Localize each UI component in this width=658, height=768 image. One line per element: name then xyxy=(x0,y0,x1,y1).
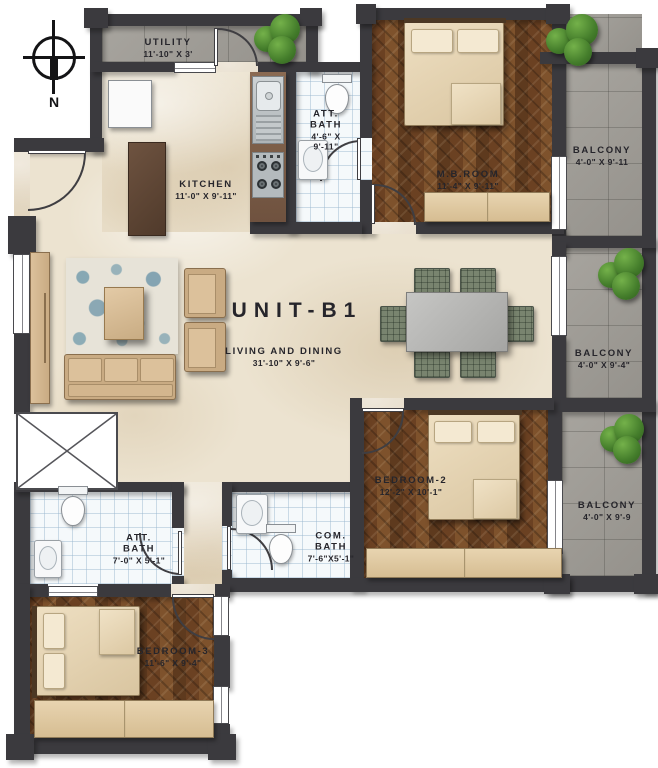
pillow xyxy=(411,29,453,53)
dining-chair xyxy=(380,306,408,342)
door-leaf xyxy=(178,531,182,575)
room-label-com-bath: COM. BATH 7'-6"X5'-1" xyxy=(304,531,358,564)
refrigerator xyxy=(108,80,152,128)
room-label-kitchen: KITCHEN 11'-0" X 9'-11" xyxy=(151,179,261,201)
bed-bedroom2 xyxy=(428,414,520,520)
wall-segment xyxy=(548,398,656,412)
wall-segment xyxy=(14,738,232,754)
room-label-balcony-bottom: BALCONY 4'-0" X 9'-9 xyxy=(562,500,652,522)
window xyxy=(551,156,567,230)
sofa xyxy=(64,354,176,400)
sofa-cushion xyxy=(140,358,174,382)
plant-foliage xyxy=(612,272,640,300)
dining-chair xyxy=(506,306,534,342)
wall-segment xyxy=(356,4,376,24)
wardrobe-master xyxy=(424,192,550,222)
wall-segment xyxy=(360,8,372,138)
door-leaf xyxy=(227,526,231,570)
blanket xyxy=(473,479,517,519)
toilet-bowl xyxy=(61,496,85,526)
armchair-cushion xyxy=(188,274,216,314)
plant-foliage xyxy=(613,436,641,464)
bed-headboard xyxy=(404,18,506,23)
stove-knobs xyxy=(256,155,282,158)
wall-segment xyxy=(90,14,102,152)
sink-drainboard xyxy=(256,115,281,141)
window xyxy=(551,256,567,336)
floor-plan: N xyxy=(0,0,658,768)
compass-north-label: N xyxy=(22,94,86,110)
stove-burner xyxy=(257,161,267,171)
bed-headboard xyxy=(428,410,522,415)
wall-segment xyxy=(222,482,362,492)
wardrobe-bedroom3 xyxy=(34,700,214,738)
door-leaf xyxy=(172,594,214,598)
wall-segment xyxy=(84,8,108,28)
toilet-tank xyxy=(266,524,296,533)
door-opening xyxy=(360,138,372,180)
toilet-bowl xyxy=(269,534,293,564)
potted-plant xyxy=(544,14,602,66)
room-label-living-dining: LIVING AND DINING 31'-10" X 9'-6" xyxy=(204,346,364,368)
plant-foliage xyxy=(564,38,592,66)
bed-master xyxy=(404,22,504,126)
window xyxy=(547,480,563,554)
potted-plant xyxy=(596,248,646,300)
dining-table xyxy=(406,292,508,352)
wall-segment xyxy=(222,578,568,592)
coffee-table xyxy=(104,287,144,340)
dining-chair xyxy=(460,350,496,378)
stove-burner xyxy=(271,179,281,189)
cabinet-handle xyxy=(44,293,46,363)
wall-segment xyxy=(6,734,34,760)
wall-segment xyxy=(552,242,566,256)
door-leaf xyxy=(362,408,404,412)
door-leaf xyxy=(371,184,375,224)
wall-segment xyxy=(634,574,658,594)
pillow xyxy=(477,421,515,443)
hall-cabinet xyxy=(30,252,50,404)
compass-rose: N xyxy=(22,20,86,112)
potted-plant xyxy=(598,414,646,464)
room-label-mb-room: M.B.ROOM 11'-4" X 9'-11" xyxy=(403,169,533,191)
stove-burner xyxy=(271,161,281,171)
room-label-att-bath-top: ATT. BATH 4'-6" X 9'-11" xyxy=(302,109,350,152)
pillow xyxy=(43,613,65,649)
wall-segment xyxy=(8,216,36,254)
room-label-balcony-mid: BALCONY 4'-0" X 9'-4" xyxy=(559,348,649,370)
sofa-seat xyxy=(68,384,173,397)
toilet xyxy=(266,524,296,566)
window xyxy=(13,254,30,334)
room-label-bedroom2: BEDROOM-2 12'-2" X 10'-1" xyxy=(363,475,459,497)
wall-segment xyxy=(552,236,656,248)
armchair xyxy=(184,268,226,318)
toilet-tank xyxy=(58,486,88,495)
room-label-balcony-top: BALCONY 4'-0" X 9'-11 xyxy=(557,145,647,167)
plant-foliage xyxy=(268,36,296,64)
shaft-void xyxy=(16,412,118,490)
wall-segment xyxy=(172,482,184,530)
toilet xyxy=(58,486,88,528)
kitchen-sink xyxy=(252,76,284,144)
wall-segment xyxy=(286,70,296,232)
window xyxy=(48,586,98,597)
door-leaf xyxy=(28,150,86,154)
room-label-att-bath-bottom: ATT. BATH 7'-0" X 5'-1" xyxy=(111,533,167,566)
sofa-cushion xyxy=(68,358,102,382)
potted-plant xyxy=(252,14,300,64)
unit-title: UNIT-B1 xyxy=(232,299,363,323)
room-label-bedroom3: BEDROOM-3 11'-6" X 9'-4" xyxy=(121,646,225,668)
blanket xyxy=(451,83,501,125)
wall-segment xyxy=(14,584,30,754)
window xyxy=(174,62,216,73)
wall-segment xyxy=(250,222,362,234)
pillow xyxy=(43,653,65,689)
wall-segment xyxy=(14,334,30,414)
wall-segment xyxy=(14,488,30,586)
toilet-tank xyxy=(322,74,352,83)
bed-headboard xyxy=(32,606,37,698)
wall-segment xyxy=(98,584,171,597)
wall-segment xyxy=(404,398,554,410)
wash-basin xyxy=(34,540,62,578)
pillow xyxy=(457,29,499,53)
room-label-utility: UTILITY 11'-10" X 3' xyxy=(113,37,223,59)
window xyxy=(213,686,229,724)
compass-needle xyxy=(50,58,58,80)
door-leaf xyxy=(357,138,361,180)
sofa-cushion xyxy=(104,358,138,382)
wall-segment xyxy=(90,62,174,72)
floor-corridor xyxy=(184,482,222,592)
pillow xyxy=(434,421,472,443)
wall-segment xyxy=(300,8,322,26)
wall-segment xyxy=(222,482,232,526)
shaft-cross-icon xyxy=(18,414,116,488)
wash-basin xyxy=(236,494,268,534)
sink-bowl xyxy=(256,81,281,111)
wall-segment xyxy=(548,412,562,480)
wall-segment xyxy=(636,48,658,68)
wardrobe-bedroom2 xyxy=(366,548,562,578)
dining-chair xyxy=(414,350,450,378)
wall-segment xyxy=(416,222,564,234)
window xyxy=(213,596,229,636)
